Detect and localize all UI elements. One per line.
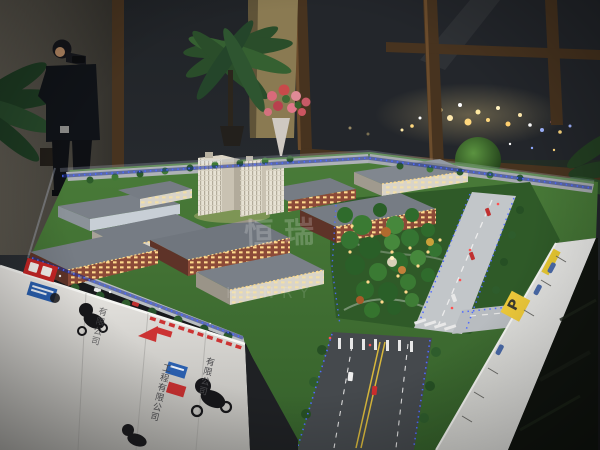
showroom-photo: 恒瑞 HENRY 工程有限公司 有限公司 有限公司 P (0, 0, 600, 450)
palm-trunk (228, 70, 233, 128)
photo-canvas (0, 0, 600, 450)
plant-pot (220, 126, 244, 146)
phone (72, 56, 85, 63)
